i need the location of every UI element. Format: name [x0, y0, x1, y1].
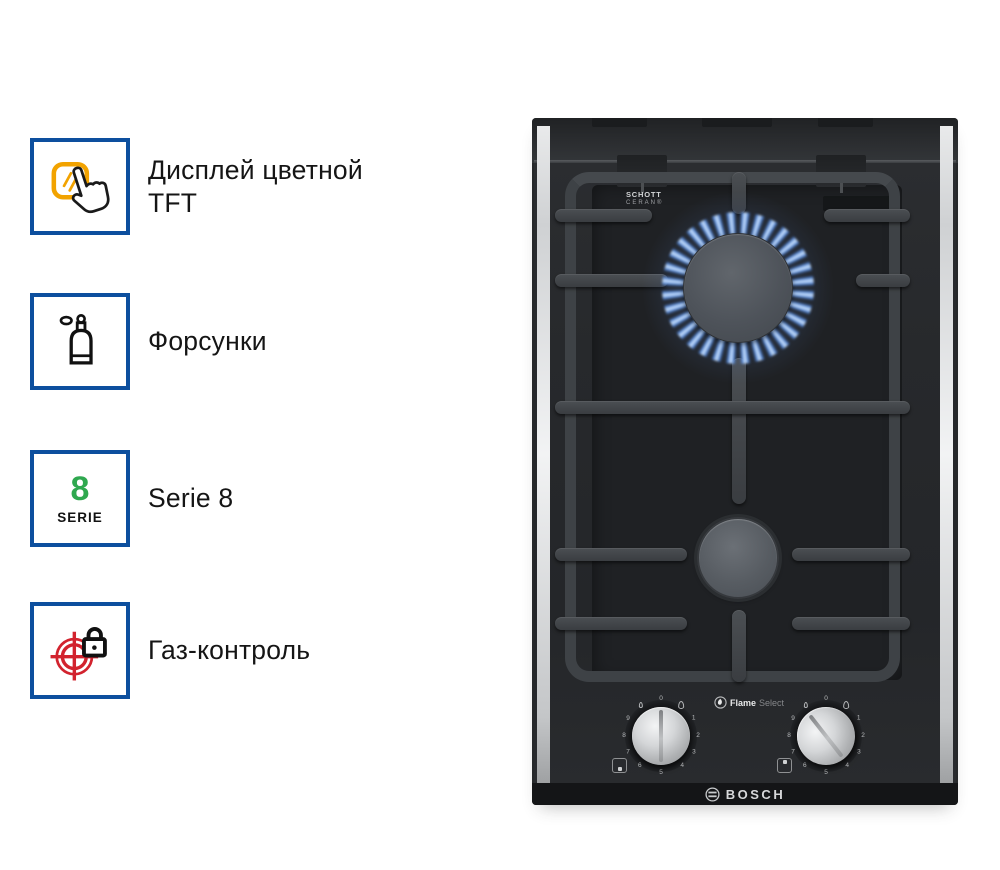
bosch-wordmark: BOSCH — [726, 787, 785, 802]
feature-label: Serie 8 — [148, 482, 418, 514]
flameselect-icon — [714, 696, 727, 709]
grate-bar — [856, 274, 910, 287]
flameselect-logo: FlameSelect — [714, 696, 784, 709]
grate-bar — [555, 617, 687, 630]
position-dot — [618, 767, 622, 771]
position-dot — [783, 760, 787, 764]
burner-cap-top — [683, 233, 793, 343]
hob-top-tab — [592, 118, 647, 127]
feature-row-gas-control: Газ-контроль — [30, 602, 418, 699]
left-knob-area: 0123456789 — [616, 691, 706, 781]
touch-display-icon — [44, 154, 116, 220]
tft-display-icon — [30, 138, 130, 235]
hob-top-tab — [702, 118, 772, 127]
brand-strip: BOSCH — [532, 783, 958, 805]
cylinder-icon — [47, 309, 113, 375]
burner-position-icon-rear — [777, 758, 792, 773]
serie-8-badge: 8 SERIE — [30, 450, 130, 547]
grate-bar — [555, 401, 910, 414]
feature-row-serie8: 8 SERIE Serie 8 — [30, 450, 418, 547]
hob-top-tab — [818, 118, 873, 127]
crosshair-lock-icon — [46, 617, 114, 685]
right-knob-area: 0123456789 — [781, 691, 871, 781]
grate-bar — [792, 548, 910, 561]
gas-cylinder-icon — [30, 293, 130, 390]
feature-row-nozzles: Форсунки — [30, 293, 418, 390]
grate-bar — [555, 209, 652, 222]
product-image-gas-hob[interactable]: SCHOTT CERAN® FlameSelect — [532, 118, 958, 805]
serie-number: 8 — [57, 472, 103, 508]
feature-label: Газ-контроль — [148, 634, 418, 666]
feature-label: Дисплей цветной TFT — [148, 154, 418, 219]
grate-bar — [824, 209, 910, 222]
burner-cap-bottom — [697, 517, 779, 599]
grate-bar — [792, 617, 910, 630]
serie-word: SERIE — [57, 510, 103, 525]
bosch-logo-icon — [705, 787, 720, 802]
side-trim-right — [940, 126, 953, 783]
feature-label: Форсунки — [148, 325, 418, 357]
left-knob[interactable] — [632, 707, 690, 765]
side-trim-left — [537, 126, 550, 783]
feature-row-tft-display: Дисплей цветной TFT — [30, 138, 418, 235]
flameselect-bold: Flame — [730, 698, 756, 708]
grate-bar — [555, 548, 687, 561]
gas-control-icon — [30, 602, 130, 699]
grate-bar — [732, 610, 746, 682]
burner-position-icon-front — [612, 758, 627, 773]
product-page: Дисплей цветной TFT Форсунки 8 SERIE Ser… — [0, 0, 1000, 870]
